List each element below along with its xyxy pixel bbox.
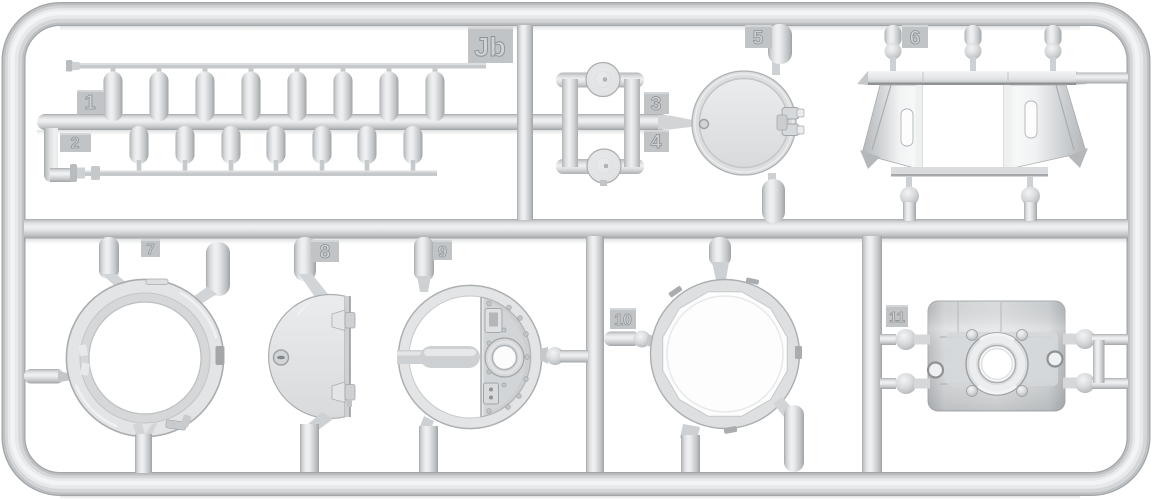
svg-text:10: 10 [614,312,632,329]
svg-text:4: 4 [651,132,662,153]
svg-text:7: 7 [146,241,154,258]
svg-text:9: 9 [438,244,447,261]
svg-text:1: 1 [84,92,95,114]
svg-text:11: 11 [889,309,905,326]
svg-text:6: 6 [910,28,921,49]
svg-text:8: 8 [320,242,331,263]
svg-text:2: 2 [71,135,80,152]
svg-text:3: 3 [651,94,662,115]
svg-text:5: 5 [753,28,764,49]
svg-text:Jb: Jb [474,32,506,62]
